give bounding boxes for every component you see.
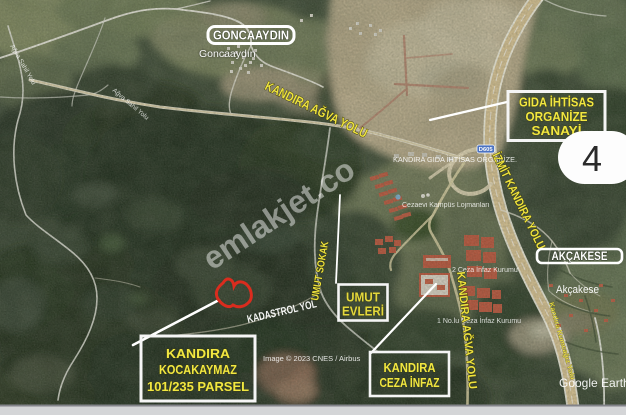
svg-text:KANDIRA: KANDIRA [166,346,231,361]
svg-text:Akçakese: Akçakese [556,284,599,296]
svg-text:1 No.lu Ceza İnfaz Kurumu: 1 No.lu Ceza İnfaz Kurumu [437,316,521,325]
svg-text:Cezaevi Kampüs Lojmanları: Cezaevi Kampüs Lojmanları [402,202,490,209]
svg-text:KOCAKAYMAZ: KOCAKAYMAZ [159,362,237,377]
svg-text:EVLERİ: EVLERİ [342,304,384,319]
svg-text:4: 4 [582,138,602,179]
svg-text:ORGANİZE: ORGANİZE [526,109,588,124]
svg-text:Google Earth: Google Earth [559,376,626,390]
svg-text:Image © 2023 CNES / Airbus: Image © 2023 CNES / Airbus [263,354,360,363]
svg-text:CEZA İNFAZ: CEZA İNFAZ [380,375,440,390]
svg-text:GONCAAYDIN: GONCAAYDIN [213,28,289,43]
svg-text:GIDA İHTİSAS: GIDA İHTİSAS [519,95,594,110]
svg-text:Goncaaydın: Goncaaydın [199,48,256,60]
svg-text:101/235 PARSEL: 101/235 PARSEL [147,379,249,394]
svg-text:KANDIRA: KANDIRA [384,361,436,375]
svg-text:D605: D605 [479,147,494,153]
svg-text:UMUT: UMUT [346,291,380,305]
svg-text:AKÇAKESE: AKÇAKESE [552,249,608,263]
